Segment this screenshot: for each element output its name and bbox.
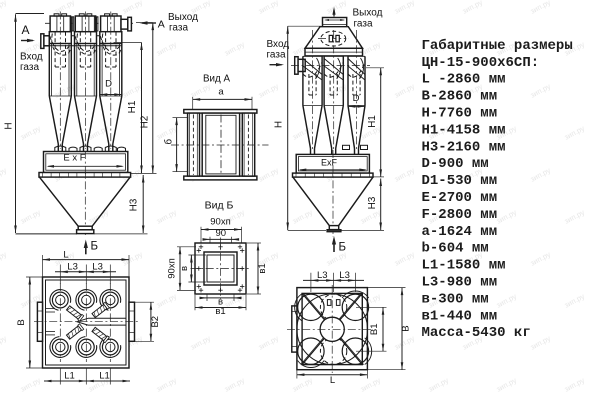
svg-text:H3: H3	[129, 198, 140, 211]
svg-text:B1: B1	[369, 323, 380, 335]
svg-text:Вид Б: Вид Б	[205, 200, 234, 212]
svg-text:Выход: Выход	[168, 12, 198, 23]
svg-text:а-1624 мм: а-1624 мм	[422, 224, 498, 240]
svg-text:газа: газа	[267, 50, 286, 61]
svg-text:B: B	[16, 319, 27, 325]
svg-text:газа: газа	[354, 18, 373, 29]
svg-text:D-900 мм: D-900 мм	[422, 156, 489, 172]
svg-text:H1: H1	[367, 115, 378, 128]
svg-text:H: H	[274, 121, 285, 128]
svg-text:в1: в1	[215, 306, 225, 317]
svg-text:Вход: Вход	[20, 52, 43, 63]
svg-text:L3: L3	[317, 270, 328, 281]
svg-text:H1: H1	[127, 100, 138, 113]
svg-text:D: D	[105, 79, 112, 90]
svg-text:H2: H2	[139, 115, 150, 128]
svg-text:L3: L3	[67, 262, 78, 273]
svg-text:L1-1580 мм: L1-1580 мм	[422, 258, 506, 274]
svg-text:в1: в1	[257, 263, 268, 273]
svg-text:H: H	[4, 122, 15, 129]
svg-text:90: 90	[216, 228, 227, 239]
svg-text:H3: H3	[367, 196, 378, 209]
svg-text:90хп: 90хп	[167, 258, 178, 278]
svg-text:F-2800 мм: F-2800 мм	[422, 207, 498, 223]
svg-text:Б: Б	[339, 242, 347, 254]
svg-text:L3: L3	[339, 270, 350, 281]
svg-text:Габаритные размеры: Габаритные размеры	[422, 38, 573, 54]
svg-text:Вход: Вход	[267, 39, 290, 50]
svg-text:ExF: ExF	[321, 158, 338, 168]
svg-text:B: B	[400, 325, 411, 331]
svg-text:ЦН-15-900х6СП:: ЦН-15-900х6СП:	[422, 55, 540, 71]
svg-text:L -2860 мм: L -2860 мм	[422, 72, 506, 88]
svg-text:газа: газа	[169, 22, 188, 33]
svg-text:B2: B2	[150, 316, 161, 328]
svg-text:Выход: Выход	[353, 8, 383, 19]
svg-text:L1: L1	[99, 370, 110, 381]
svg-text:H-7760 мм: H-7760 мм	[422, 106, 498, 122]
svg-text:L1: L1	[64, 370, 75, 381]
svg-text:А: А	[21, 23, 29, 37]
svg-text:90хп: 90хп	[210, 217, 230, 228]
svg-text:а: а	[218, 87, 224, 98]
svg-text:D1-530 мм: D1-530 мм	[422, 173, 498, 189]
svg-text:L3-980 мм: L3-980 мм	[422, 275, 498, 291]
svg-text:H3-2160 мм: H3-2160 мм	[422, 139, 506, 155]
svg-text:Масса-5430 кг: Масса-5430 кг	[422, 325, 531, 341]
svg-text:H1-4158 мм: H1-4158 мм	[422, 122, 506, 138]
svg-text:E x F: E x F	[63, 153, 85, 164]
svg-text:в-300 мм: в-300 мм	[422, 291, 489, 307]
svg-text:D: D	[353, 93, 360, 104]
svg-text:А: А	[158, 18, 165, 30]
svg-text:Б: Б	[91, 240, 99, 252]
svg-text:Вид А: Вид А	[203, 74, 230, 85]
svg-text:b-604 мм: b-604 мм	[422, 241, 489, 257]
svg-text:L: L	[63, 249, 68, 260]
svg-text:E-2700 мм: E-2700 мм	[422, 190, 498, 206]
svg-text:в: в	[179, 266, 190, 271]
svg-text:в1-440 мм: в1-440 мм	[422, 308, 498, 324]
svg-text:газа: газа	[20, 62, 39, 73]
svg-text:б: б	[162, 139, 174, 145]
svg-text:L3: L3	[92, 262, 103, 273]
svg-text:B-2860 мм: B-2860 мм	[422, 89, 498, 105]
svg-text:L: L	[330, 375, 335, 386]
